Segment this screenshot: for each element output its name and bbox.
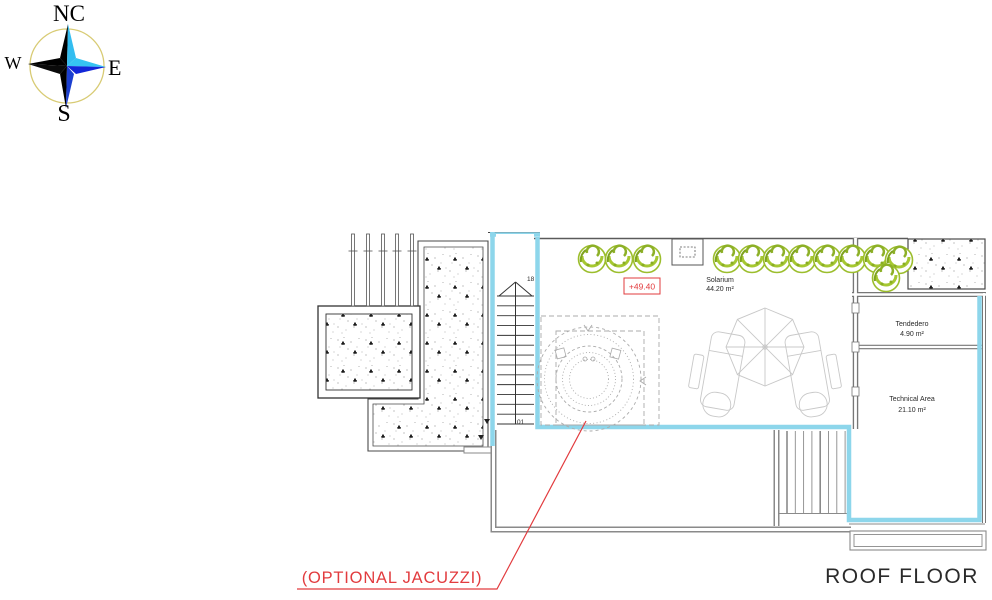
tree-icon [714, 246, 741, 273]
level-badge: +49.40 [624, 278, 660, 294]
jacuzzi-platform-outer [541, 316, 659, 425]
tree-icon [579, 246, 606, 273]
level-value: +49.40 [629, 282, 656, 292]
roof-vent [672, 239, 703, 265]
planter-box [318, 306, 420, 398]
jacuzzi-platform-inner [556, 331, 644, 425]
compass-label-east: E [108, 55, 121, 80]
optional-jacuzzi-label: (OPTIONAL JACUZZI) [302, 569, 483, 587]
room-label-technical-area: Technical Area [889, 396, 935, 403]
tree-icon [839, 246, 866, 273]
room-area-tendedero: 4.90 m² [900, 331, 924, 338]
stair-riser-top-label: 18 [527, 276, 535, 283]
door-jamb [852, 387, 859, 396]
room-area-solarium: 44.20 m² [706, 286, 734, 293]
side-ledge [464, 447, 491, 453]
tree-icon [764, 246, 791, 273]
pergola-beams [349, 234, 417, 306]
tree-icon [606, 246, 633, 273]
tree-icon [739, 246, 766, 273]
compass-label-north: NC [53, 1, 85, 26]
roof-floor-plan-page: NC E S W [0, 0, 992, 600]
tree-icon [814, 246, 841, 273]
floor-plan-svg: NC E S W [0, 0, 992, 600]
lower-exterior-stairs [787, 431, 845, 513]
page-title: ROOF FLOOR [825, 565, 979, 588]
room-area-technical-area: 21.10 m² [898, 407, 926, 414]
tree-icon [789, 246, 816, 273]
compass-label-south: S [57, 101, 70, 127]
tree-icon [634, 246, 661, 273]
door-jamb [852, 342, 859, 352]
new-works-cyan-outline [490, 232, 980, 520]
room-label-tendedero: Tendedero [895, 321, 928, 328]
lower-right-band [850, 531, 986, 550]
parasol-icon [726, 308, 804, 386]
room-label-solarium: Solarium [706, 277, 734, 284]
stair-riser-bottom-label: 01 [517, 419, 525, 426]
tree-icon [873, 265, 900, 292]
door-jamb [852, 303, 859, 313]
parasol-and-loungers [684, 308, 846, 419]
compass-rose: NC E S W [5, 1, 122, 127]
compass-star-icon [28, 24, 106, 108]
gravel-box-top-right [908, 239, 985, 289]
lower-roof-outline [464, 430, 986, 550]
compass-label-west: W [5, 53, 22, 73]
jacuzzi [537, 316, 659, 431]
